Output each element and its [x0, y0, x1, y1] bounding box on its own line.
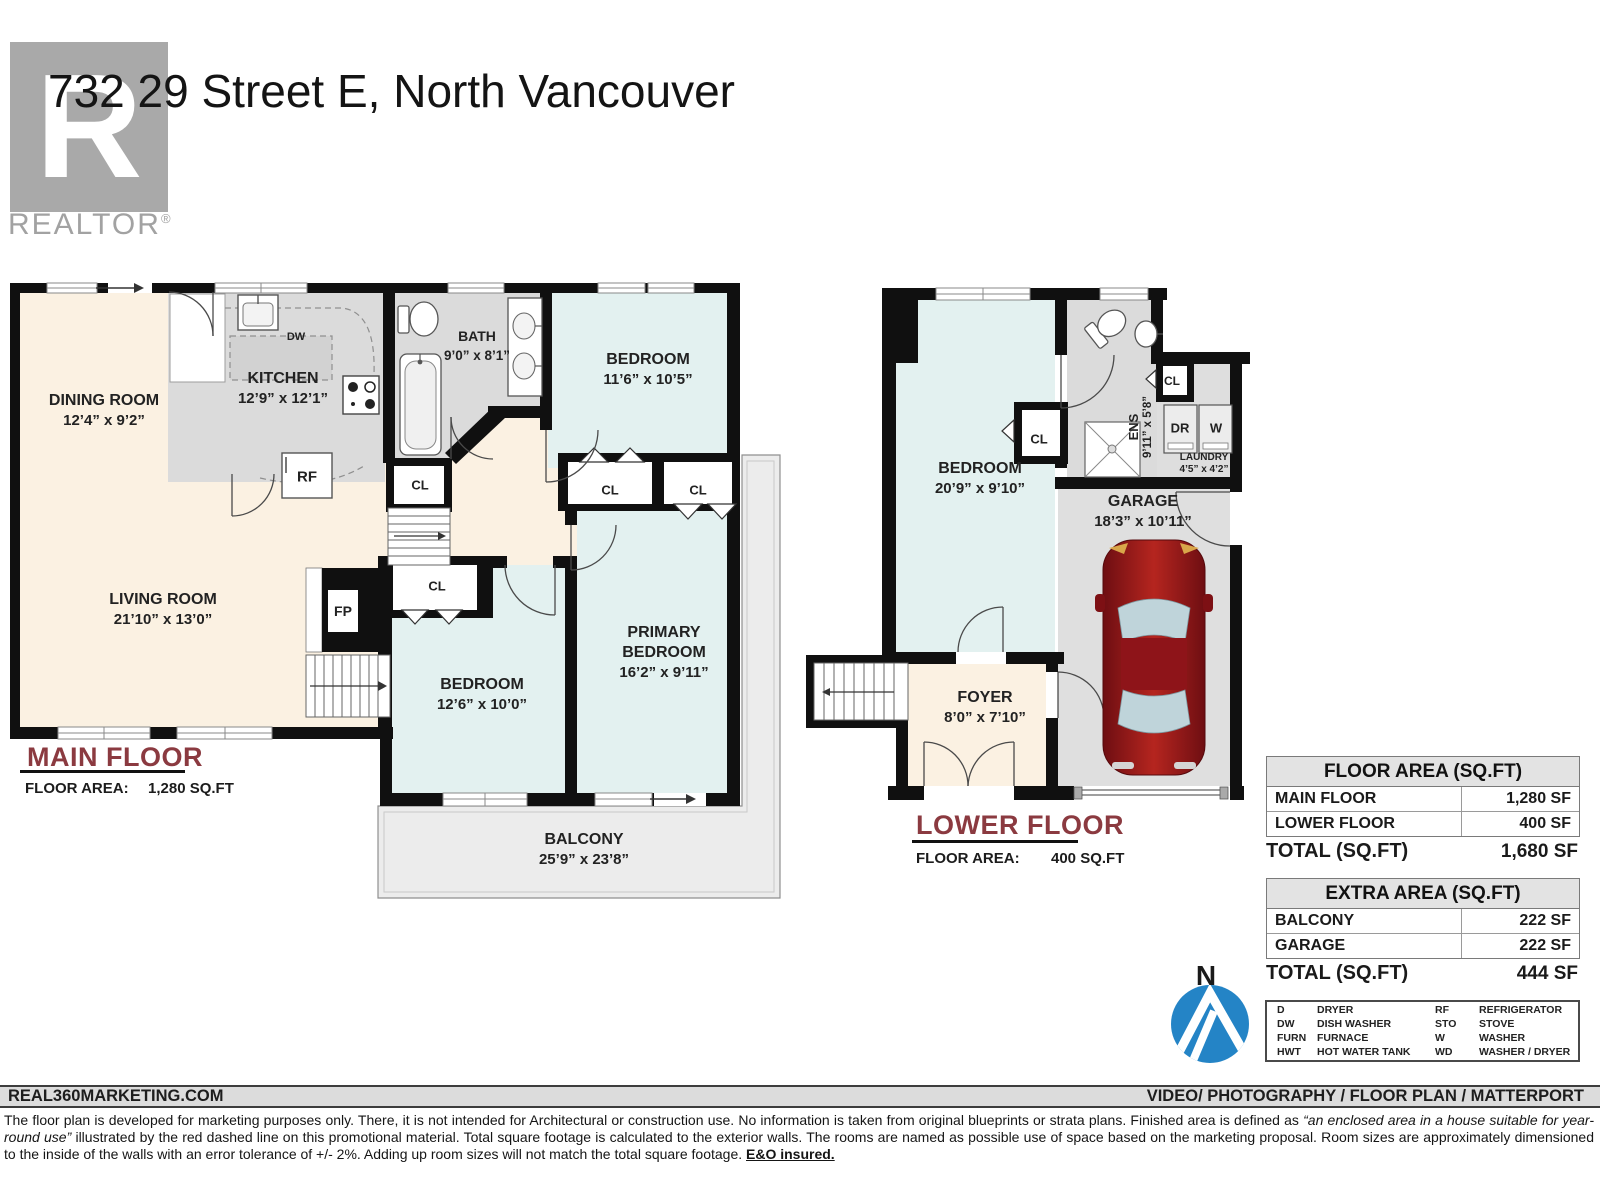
- realtor-wordmark: REALTOR®: [8, 208, 173, 242]
- disclaimer-part1: The floor plan is developed for marketin…: [4, 1112, 1303, 1128]
- room-dims: 20’9” x 9’10”: [935, 479, 1025, 499]
- compass-north-label: N: [1196, 960, 1216, 992]
- room-name: BATH: [444, 326, 510, 346]
- row-value: 1,280 SF: [1462, 790, 1579, 808]
- legend-abbr: RF: [1435, 1003, 1479, 1017]
- room-dims: 11’6” x 10’5”: [603, 370, 692, 390]
- legend-box: D DRYER RF REFRIGERATOR DW DISH WASHER S…: [1265, 1000, 1580, 1062]
- room-name: BEDROOM: [935, 459, 1025, 479]
- closet-label: CL: [1164, 374, 1180, 388]
- lower-floor-title: LOWER FLOOR: [916, 810, 1124, 841]
- room-name: FOYER: [944, 688, 1026, 708]
- stairs-main-icon: [306, 655, 390, 717]
- room-dims: 21’10” x 13’0”: [109, 610, 217, 630]
- room-label-balcony: BALCONY 25’9” x 23’8”: [539, 830, 629, 870]
- compass-icon: [1168, 984, 1252, 1064]
- closet-label: CL: [1030, 432, 1047, 447]
- legend-name: HOT WATER TANK: [1317, 1045, 1435, 1059]
- room-name: PRIMARY: [619, 623, 708, 643]
- row-value: 400 SF: [1462, 815, 1579, 833]
- room-label-ensuite: ENS 9’11” x 5’8”: [1126, 396, 1156, 458]
- extra-area-table-title: EXTRA AREA (SQ.FT): [1267, 879, 1579, 909]
- registered-mark: ®: [161, 211, 173, 226]
- legend-abbr: D: [1277, 1003, 1317, 1017]
- room-dims: 16’2” x 9’11”: [619, 663, 708, 683]
- legend-abbr: WD: [1435, 1045, 1479, 1059]
- floor-area-table: FLOOR AREA (SQ.FT) MAIN FLOOR 1,280 SF L…: [1266, 756, 1580, 837]
- room-dims: 8’0” x 7’10”: [944, 708, 1026, 728]
- disclaimer-eo-insured: E&O insured.: [746, 1146, 835, 1162]
- garage-door: [1074, 786, 1230, 800]
- washer-label: W: [1210, 421, 1222, 436]
- floor-area-total: TOTAL (SQ.FT) 1,680 SF: [1266, 840, 1578, 863]
- room-dims: 9’11” x 5’8”: [1141, 396, 1156, 458]
- lower-floor-underline: [912, 840, 1078, 843]
- room-label-foyer: FOYER 8’0” x 7’10”: [944, 688, 1026, 728]
- lower-floor-plan-drawing: [806, 278, 1250, 808]
- double-vanity-icon: [508, 298, 542, 396]
- room-name: BEDROOM: [619, 643, 708, 663]
- room-name: LAUNDRY: [1180, 452, 1229, 464]
- closet-label: CL: [689, 483, 706, 498]
- legend-abbr: W: [1435, 1031, 1479, 1045]
- legend-abbr: DW: [1277, 1017, 1317, 1031]
- room-name: LIVING ROOM: [109, 590, 217, 610]
- lower-floor-area-label: FLOOR AREA:: [916, 850, 1020, 867]
- room-dims: 9’0” x 8’1”: [444, 346, 510, 366]
- room-name: DINING ROOM: [49, 391, 159, 411]
- bathtub-icon: [400, 354, 441, 455]
- room-name: BALCONY: [539, 830, 629, 850]
- legend-name: REFRIGERATOR: [1479, 1003, 1578, 1017]
- room-name: GARAGE: [1094, 492, 1192, 512]
- floor-plan-flyer: { "header": { "title": "732 29 Street E,…: [0, 0, 1600, 1200]
- room-dims: 12’9” x 12’1”: [238, 389, 328, 409]
- table-row: MAIN FLOOR 1,280 SF: [1267, 787, 1579, 812]
- legend-name: DRYER: [1317, 1003, 1435, 1017]
- legend-abbr: STO: [1435, 1017, 1479, 1031]
- kitchen-sink-icon: [238, 295, 278, 330]
- room-label-living: LIVING ROOM 21’10” x 13’0”: [109, 590, 217, 630]
- total-label: TOTAL (SQ.FT): [1266, 840, 1408, 863]
- legend-row: FURN FURNACE W WASHER: [1277, 1031, 1578, 1045]
- stairs-hall-icon: [388, 508, 450, 565]
- footer-right-text: VIDEO/ PHOTOGRAPHY / FLOOR PLAN / MATTER…: [1147, 1087, 1584, 1106]
- legend-row: DW DISH WASHER STO STOVE: [1277, 1017, 1578, 1031]
- fridge-label: RF: [297, 469, 317, 486]
- legend-row: D DRYER RF REFRIGERATOR: [1277, 1003, 1578, 1017]
- row-label: BALCONY: [1267, 909, 1462, 933]
- closet-label: CL: [601, 483, 618, 498]
- legend-name: FURNACE: [1317, 1031, 1435, 1045]
- legend-name: DISH WASHER: [1317, 1017, 1435, 1031]
- room-dims: 25’9” x 23’8”: [539, 850, 629, 870]
- total-label: TOTAL (SQ.FT): [1266, 962, 1408, 985]
- toilet-icon: [398, 302, 438, 336]
- total-value: 444 SF: [1517, 963, 1578, 985]
- room-label-dining: DINING ROOM 12’4” x 9’2”: [49, 391, 159, 431]
- row-value: 222 SF: [1462, 937, 1579, 955]
- room-name: BEDROOM: [603, 350, 692, 370]
- stove-icon: [343, 376, 379, 414]
- legend-row: HWT HOT WATER TANK WD WASHER / DRYER: [1277, 1045, 1578, 1059]
- room-name: BEDROOM: [437, 675, 527, 695]
- extra-area-table: EXTRA AREA (SQ.FT) BALCONY 222 SF GARAGE…: [1266, 878, 1580, 959]
- fireplace-label: FP: [334, 603, 352, 619]
- disclaimer-text: The floor plan is developed for marketin…: [4, 1112, 1594, 1163]
- room-label-bath: BATH 9’0” x 8’1”: [444, 326, 510, 366]
- row-label: LOWER FLOOR: [1267, 812, 1462, 836]
- dishwasher-label: DW: [287, 331, 305, 343]
- room-name: ENS: [1126, 396, 1141, 458]
- room-name: KITCHEN: [238, 369, 328, 389]
- footer-bar: REAL360MARKETING.COM VIDEO/ PHOTOGRAPHY …: [0, 1085, 1600, 1108]
- main-floor-area-value: 1,280 SQ.FT: [148, 780, 234, 797]
- room-label-bedroom2: BEDROOM 12’6” x 10’0”: [437, 675, 527, 715]
- row-label: MAIN FLOOR: [1267, 787, 1462, 811]
- main-floor-area-label: FLOOR AREA:: [25, 780, 129, 797]
- room-label-primary-bedroom: PRIMARY BEDROOM 16’2” x 9’11”: [619, 623, 708, 683]
- stairs-lower-icon: [814, 663, 908, 720]
- legend-abbr: HWT: [1277, 1045, 1317, 1059]
- row-label: GARAGE: [1267, 934, 1462, 958]
- dryer-label: DR: [1171, 421, 1190, 436]
- legend-name: STOVE: [1479, 1017, 1578, 1031]
- table-row: BALCONY 222 SF: [1267, 909, 1579, 934]
- room-label-lower-bedroom: BEDROOM 20’9” x 9’10”: [935, 459, 1025, 499]
- room-dims: 12’6” x 10’0”: [437, 695, 527, 715]
- table-row: GARAGE 222 SF: [1267, 934, 1579, 958]
- room-dims: 18’3” x 10’11”: [1094, 512, 1192, 532]
- room-dims: 12’4” x 9’2”: [49, 411, 159, 431]
- total-value: 1,680 SF: [1501, 841, 1578, 863]
- main-floor-underline: [20, 770, 185, 773]
- closet-label: CL: [411, 478, 428, 493]
- main-floor-title: MAIN FLOOR: [27, 742, 203, 773]
- car-illustration: [1095, 540, 1213, 775]
- legend-abbr: FURN: [1277, 1031, 1317, 1045]
- extra-area-total: TOTAL (SQ.FT) 444 SF: [1266, 962, 1578, 985]
- room-label-garage: GARAGE 18’3” x 10’11”: [1094, 492, 1192, 532]
- room-dims: 4’5” x 4’2”: [1180, 464, 1229, 476]
- table-row: LOWER FLOOR 400 SF: [1267, 812, 1579, 836]
- room-label-bedroom1: BEDROOM 11’6” x 10’5”: [603, 350, 692, 390]
- closet-label: CL: [428, 579, 445, 594]
- legend-name: WASHER: [1479, 1031, 1578, 1045]
- page-title: 732 29 Street E, North Vancouver: [48, 64, 735, 118]
- legend-name: WASHER / DRYER: [1479, 1045, 1578, 1059]
- footer-left-text: REAL360MARKETING.COM: [8, 1087, 223, 1106]
- room-label-kitchen: KITCHEN 12’9” x 12’1”: [238, 369, 328, 409]
- realtor-wordmark-text: REALTOR: [8, 208, 161, 241]
- floor-area-table-title: FLOOR AREA (SQ.FT): [1267, 757, 1579, 787]
- lower-floor-area-value: 400 SQ.FT: [1051, 850, 1124, 867]
- row-value: 222 SF: [1462, 912, 1579, 930]
- room-label-laundry: LAUNDRY 4’5” x 4’2”: [1180, 452, 1229, 476]
